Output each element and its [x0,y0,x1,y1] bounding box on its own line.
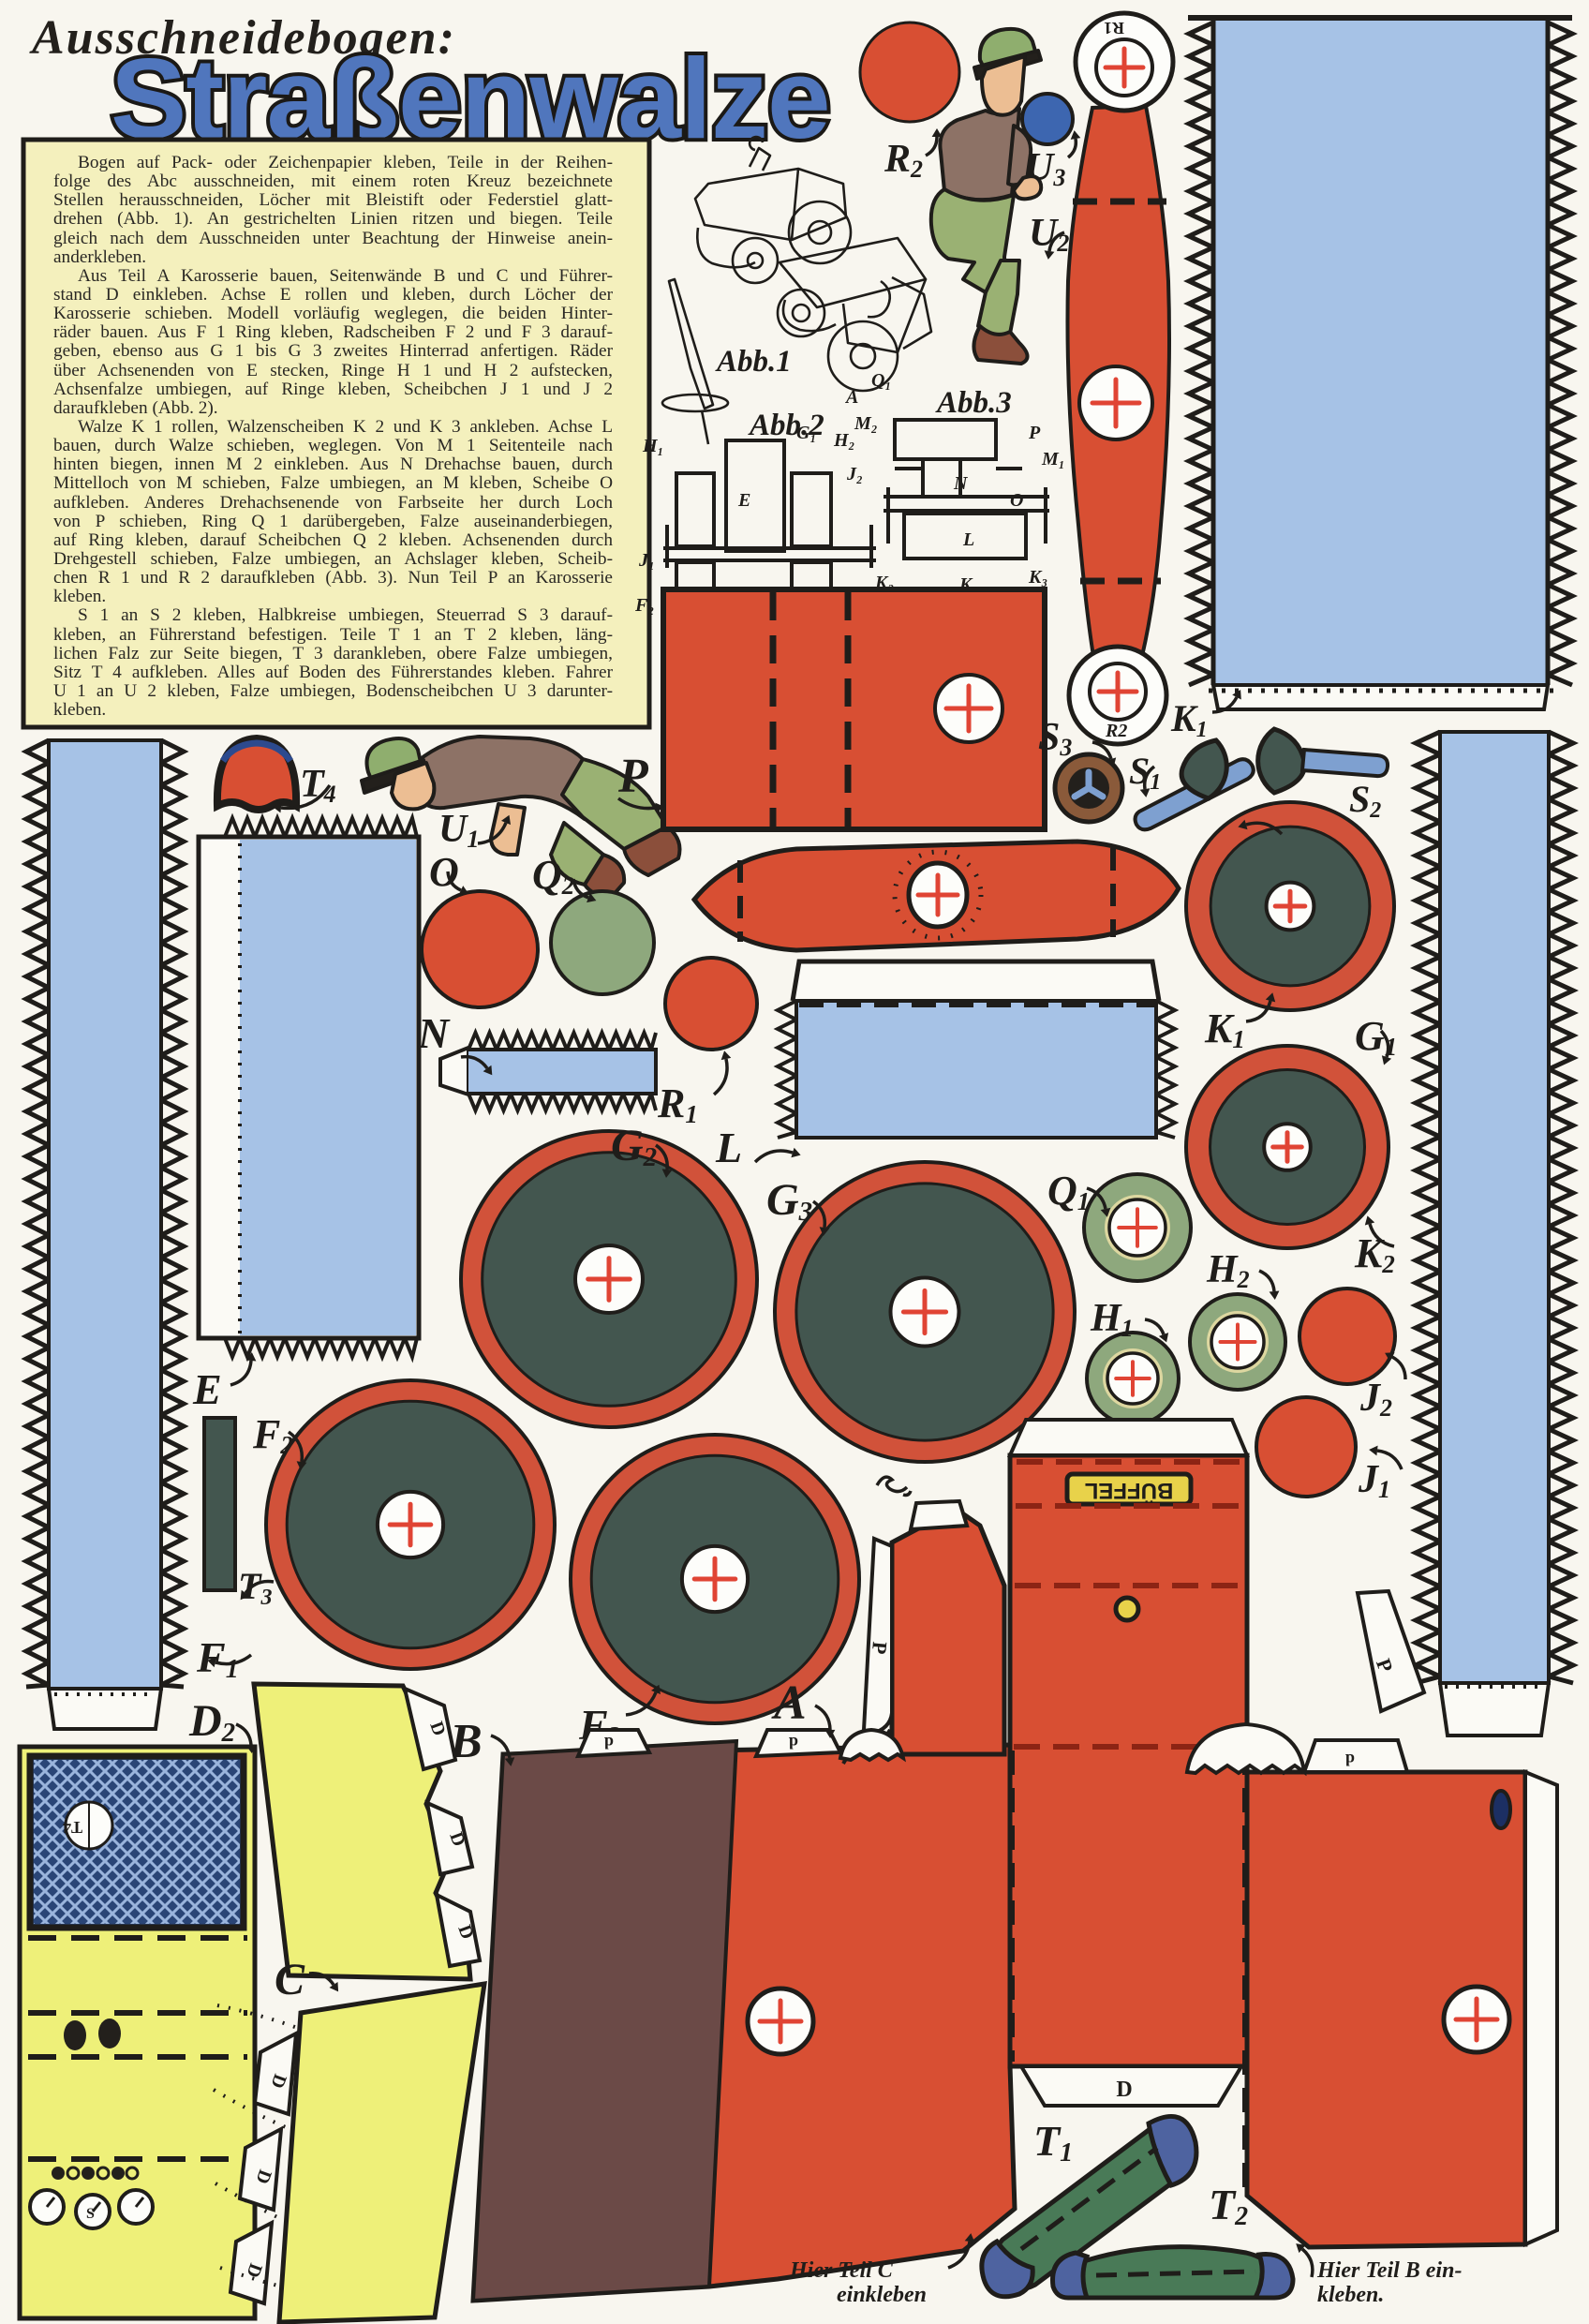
svg-text:L: L [715,1124,742,1171]
svg-text:R1: R1 [1104,19,1124,37]
svg-text:A: A [844,387,858,408]
svg-text:Hier Teil B ein-: Hier Teil B ein- [1316,2258,1462,2283]
svg-text:P: P [617,750,649,803]
svg-text:D: D [1116,2078,1132,2102]
svg-text:BÜFFEL: BÜFFEL [1085,1478,1174,1503]
svg-text:T4: T4 [63,1818,82,1837]
svg-text:M₂: M₂ [854,413,878,434]
svg-text:N: N [953,473,969,494]
svg-text:N: N [417,1009,451,1057]
svg-text:Abb.3: Abb.3 [935,386,1012,420]
svg-text:E: E [737,490,750,511]
svg-text:K₃: K₃ [1028,567,1047,588]
svg-text:Abb.1: Abb.1 [715,345,792,379]
svg-text:M₁: M₁ [1041,449,1065,469]
svg-text:O: O [1010,490,1023,511]
svg-text:P: P [1028,423,1041,443]
svg-text:R2: R2 [1105,721,1127,741]
svg-text:d: d [604,1734,614,1752]
svg-text:J₂: J₂ [846,464,863,484]
svg-text:d: d [789,1734,798,1752]
svg-text:G₁: G₁ [796,423,816,443]
svg-text:J₁: J₁ [638,550,655,571]
svg-text:C: C [275,1955,305,2004]
svg-text:L: L [962,529,974,550]
svg-text:Hier Teil C: Hier Teil C [789,2258,894,2283]
svg-text:E: E [192,1365,222,1413]
svg-text:Q₁: Q₁ [871,370,891,391]
svg-text:H₂: H₂ [833,430,855,451]
svg-text:F₂: F₂ [634,595,654,616]
svg-text:kleben.: kleben. [1317,2283,1384,2307]
svg-text:H₁: H₁ [642,436,664,456]
svg-text:d: d [1345,1750,1355,1769]
svg-text:A: A [771,1676,807,1730]
svg-text:S: S [86,2206,95,2222]
svg-text:P: P [868,1641,892,1656]
svg-text:einkleben: einkleben [837,2283,927,2307]
